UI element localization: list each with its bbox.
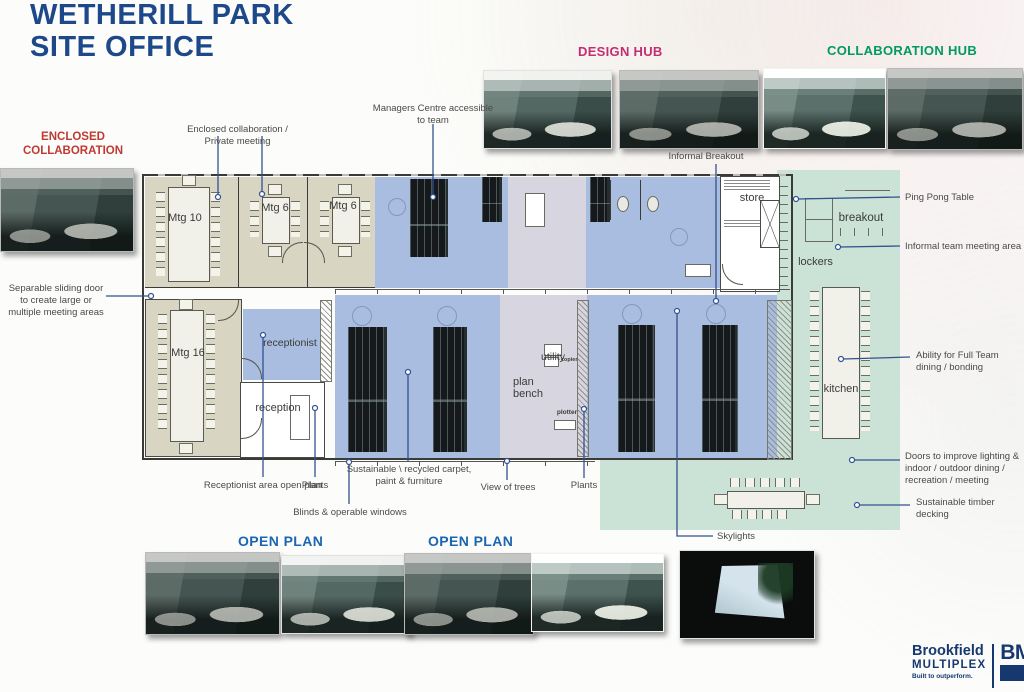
- mtg6b-chair-top: [338, 184, 352, 195]
- room-label-copier: copier: [561, 357, 587, 363]
- callout-blinds: Blinds & operable windows: [270, 507, 430, 519]
- callout-plants-left: Plants: [290, 480, 340, 492]
- section-design-hub: DESIGN HUB: [578, 44, 663, 59]
- wall-mtg10-mtg6: [238, 177, 239, 288]
- wc-fixture-2: [647, 196, 659, 212]
- logo-monogram: BM: [1000, 644, 1024, 662]
- desk-bank-bottom-2: [433, 327, 467, 452]
- mtg16-chair-top: [179, 299, 193, 310]
- hatch-strip-east: [767, 300, 792, 460]
- photo-open-plan-4: [531, 553, 664, 632]
- photo-open-plan-3: [404, 553, 534, 635]
- ceiling-circle-1: [352, 306, 372, 326]
- ceiling-circle-5: [388, 198, 406, 216]
- photo-collaboration-hub-1: [763, 68, 886, 149]
- desk-bank-top-3: [590, 177, 610, 222]
- store-note-1: [724, 180, 770, 190]
- room-label-mtg16: Mtg 16: [168, 347, 208, 359]
- floor-plan: Mtg 10 Mtg 6 Mtg 6 Mtg 16 receptionist r…: [140, 168, 900, 533]
- photo-enclosed-collaboration: [0, 168, 134, 252]
- logo-brand: Brookfield: [912, 644, 986, 659]
- photo-design-hub-1: [483, 70, 612, 149]
- kitchen-chairs-left: [810, 291, 819, 431]
- logo-square: [1000, 665, 1024, 681]
- page-title-line1: WETHERILL PARK: [30, 0, 294, 32]
- deck-table: [727, 491, 805, 509]
- callout-skylights: Skylights: [717, 531, 755, 543]
- callout-ping-pong: Ping Pong Table: [905, 192, 974, 204]
- callout-view-of-trees: View of trees: [477, 482, 539, 494]
- skylight-tree: [758, 563, 793, 608]
- room-label-store: store: [732, 192, 772, 204]
- wall-south: [142, 458, 793, 460]
- logo-tagline: Built to outperform.: [912, 673, 986, 680]
- deck-chair-left: [714, 494, 728, 505]
- deck-chair-right: [806, 494, 820, 505]
- mtg16-chairs-right: [206, 314, 215, 434]
- plotter-machine: [554, 420, 576, 430]
- callout-timber-decking: Sustainable timber decking: [916, 497, 1006, 521]
- callout-doors-improve: Doors to improve lighting & indoor / out…: [905, 451, 1021, 487]
- ceiling-circle-6: [670, 228, 688, 246]
- logo-monogram-block: BM: [1000, 644, 1024, 681]
- wc-fixture-1: [617, 196, 629, 212]
- wall-north: [142, 174, 793, 176]
- mtg16-table: [170, 310, 204, 442]
- desk-bank-bottom-4: [702, 325, 738, 452]
- page-title: WETHERILL PARK SITE OFFICE: [30, 0, 294, 64]
- room-label-reception: reception: [243, 402, 313, 414]
- wall-meeting-south: [145, 287, 375, 288]
- deck-chairs-top: [730, 478, 800, 487]
- ceiling-circle-4: [706, 304, 726, 324]
- callout-sustainable-carpet: Sustainable \ recycled carpet, paint & f…: [338, 464, 480, 488]
- desk-bank-top-2: [482, 177, 502, 222]
- room-label-receptionist: receptionist: [252, 338, 328, 350]
- photo-collaboration-hub-2: [887, 68, 1023, 150]
- ceiling-circle-3: [622, 304, 642, 324]
- section-enclosed-collaboration: ENCLOSED COLLABORATION: [8, 130, 138, 159]
- kitchen-chairs-right: [861, 291, 870, 431]
- desk-bank-top-1: [410, 179, 448, 257]
- wc-basin: [685, 264, 711, 277]
- section-open-plan-right: OPEN PLAN: [428, 533, 513, 549]
- logo-divider: [992, 644, 994, 688]
- dimension-line-mid: [335, 289, 790, 294]
- mtg6a-chair-bottom: [268, 246, 282, 257]
- room-label-lockers: lockers: [788, 256, 843, 268]
- corridor-fixture: [525, 193, 545, 227]
- photo-open-plan-1: [145, 552, 280, 635]
- room-label-mtg6b: Mtg 6: [323, 200, 363, 212]
- breakout-bench-ticks: [840, 228, 892, 236]
- callout-plants-right: Plants: [559, 480, 609, 492]
- section-collaboration-hub: COLLABORATION HUB: [827, 43, 977, 58]
- callout-informal-breakout: Informal Breakout: [660, 151, 752, 163]
- desk-bank-bottom-1: [348, 327, 387, 452]
- logo-text-block: Brookfield MULTIPLEX Built to outperform…: [912, 644, 986, 680]
- section-open-plan-left: OPEN PLAN: [238, 533, 323, 549]
- mtg16-chair-bottom: [179, 443, 193, 454]
- breakout-tables: [805, 198, 833, 242]
- locker-ticks: [780, 186, 788, 288]
- company-logo: Brookfield MULTIPLEX Built to outperform…: [912, 644, 1024, 688]
- callout-enclosed-private: Enclosed collaboration / Private meeting: [180, 124, 295, 148]
- room-label-mtg10: Mtg 10: [165, 212, 205, 224]
- ping-pong-table: [760, 200, 780, 248]
- photo-open-plan-2: [281, 555, 411, 634]
- wc-partition-2: [640, 180, 641, 220]
- room-label-plotter: plotter: [550, 409, 584, 416]
- logo-brand-sub: MULTIPLEX: [912, 659, 986, 672]
- ceiling-circle-2: [437, 306, 457, 326]
- room-label-plan-bench: plan bench: [513, 376, 553, 400]
- page-title-line2: SITE OFFICE: [30, 32, 294, 64]
- wall-west: [142, 174, 144, 460]
- mtg10-table: [168, 187, 210, 282]
- mtg6a-chair-top: [268, 184, 282, 195]
- photo-skylight: [679, 550, 815, 639]
- mtg10-chairs-left: [156, 192, 165, 276]
- room-label-breakout: breakout: [831, 212, 891, 225]
- callout-managers-centre: Managers Centre accessible to team: [370, 103, 496, 127]
- hatch-strip-corridor: [577, 300, 589, 457]
- callout-full-team-dining: Ability for Full Team dining / bonding: [916, 350, 1018, 374]
- desk-bank-bottom-3: [618, 325, 655, 452]
- callout-informal-team: Informal team meeting area: [905, 241, 1021, 253]
- mtg10-chairs-right: [211, 192, 220, 276]
- wc-partition-1: [610, 180, 611, 220]
- mtg16-chairs-left: [158, 314, 167, 434]
- room-label-mtg6a: Mtg 6: [255, 202, 295, 214]
- callout-separable-door: Separable sliding door to create large o…: [6, 283, 106, 319]
- kitchen-table: [822, 287, 860, 439]
- breakout-bench-line: [845, 190, 890, 191]
- photo-design-hub-2: [619, 70, 759, 149]
- mtg10-chair-top: [182, 175, 196, 186]
- deck-chairs-bottom: [732, 510, 790, 519]
- zone-corridor-top: [508, 177, 586, 288]
- wall-mtg6-mtg6: [307, 177, 308, 288]
- room-label-kitchen: kitchen: [816, 383, 866, 395]
- mtg6b-chair-bottom: [338, 246, 352, 257]
